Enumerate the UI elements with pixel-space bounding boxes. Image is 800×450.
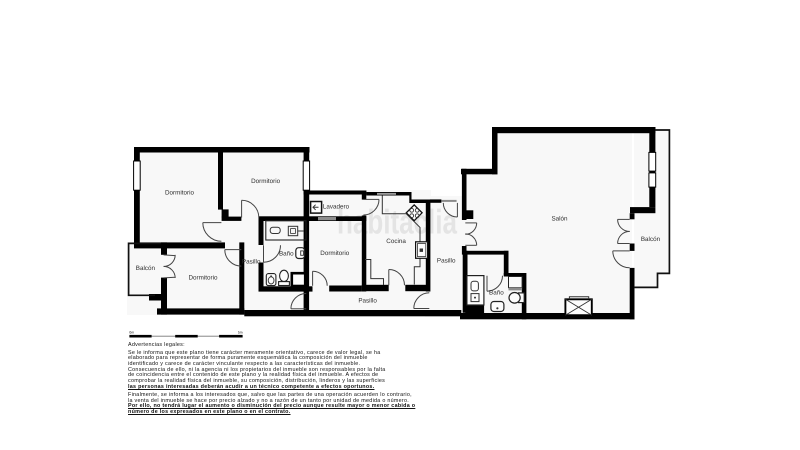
svg-text:Baño: Baño — [489, 290, 504, 297]
svg-text:Pasillo: Pasillo — [242, 259, 261, 266]
svg-text:Balcón: Balcón — [641, 236, 661, 243]
svg-text:habitaclia: habitaclia — [337, 202, 457, 242]
svg-text:0m: 0m — [129, 330, 134, 334]
svg-text:Lavadero: Lavadero — [323, 204, 350, 211]
svg-text:5m: 5m — [238, 330, 243, 334]
svg-text:Dormitorio: Dormitorio — [188, 274, 218, 281]
svg-text:Dormitorio: Dormitorio — [251, 178, 281, 185]
svg-text:Salón: Salón — [551, 216, 568, 223]
svg-text:Dormitorio: Dormitorio — [320, 250, 350, 257]
svg-text:Pasillo: Pasillo — [358, 297, 377, 304]
svg-text:Cocina: Cocina — [386, 238, 406, 245]
svg-text:Baño: Baño — [279, 251, 294, 258]
svg-text:Dormitorio: Dormitorio — [165, 190, 195, 197]
svg-text:Pasillo: Pasillo — [437, 257, 456, 264]
svg-text:Balcón: Balcón — [136, 265, 156, 272]
